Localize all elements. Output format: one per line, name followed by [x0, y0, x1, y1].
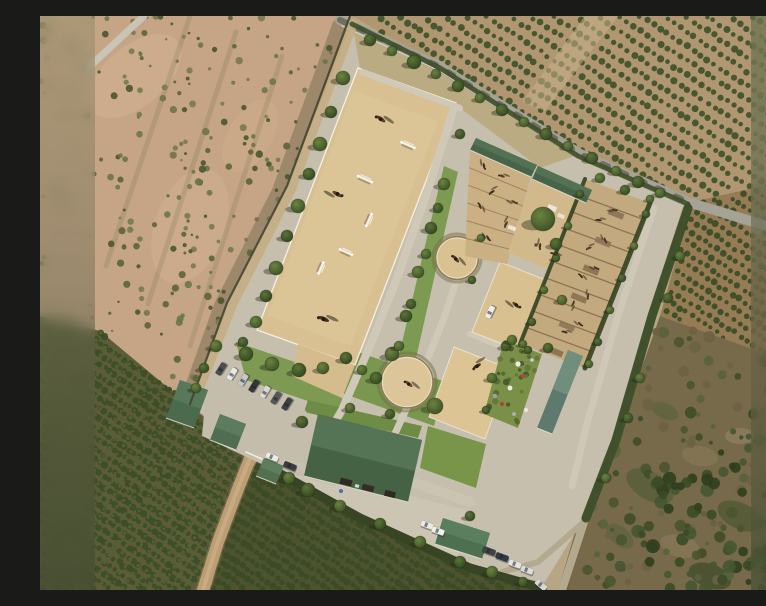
orchard-tree [185, 563, 188, 566]
bush [123, 281, 130, 288]
orchard-tree [254, 550, 259, 555]
orchard-tree [745, 338, 750, 343]
bush [208, 306, 212, 310]
orchard-tree [102, 508, 105, 511]
orchard-tree [250, 559, 255, 564]
bush [266, 118, 270, 122]
orchard-tree [486, 87, 491, 92]
orchard-tree [170, 553, 175, 558]
bush [659, 462, 670, 473]
bush [638, 531, 645, 538]
orchard-tree [499, 37, 504, 42]
bush [67, 88, 74, 95]
bush [104, 16, 109, 21]
bush [73, 144, 78, 149]
orchard-tree [132, 430, 135, 433]
orchard-tree [235, 537, 241, 543]
orchard-tree [611, 40, 616, 45]
bush [748, 409, 759, 420]
bush [688, 435, 695, 442]
bush [626, 563, 633, 570]
orchard-tree [105, 432, 109, 436]
orchard-tree [415, 550, 420, 555]
orchard-tree [70, 519, 73, 522]
orchard-tree [745, 40, 750, 45]
orchard-tree [696, 235, 702, 241]
orchard-tree [111, 406, 114, 409]
orchard-tree [437, 26, 443, 32]
orchard-tree [325, 577, 330, 582]
orchard-tree [95, 395, 98, 398]
orchard-tree [578, 89, 585, 96]
orchard-tree [632, 138, 637, 143]
orchard-tree [255, 571, 261, 577]
orchard-tree [760, 288, 766, 294]
orchard-tree [133, 409, 136, 412]
orchard-tree [76, 565, 79, 568]
orchard-tree [599, 103, 604, 108]
orchard-tree [612, 155, 619, 162]
tree-crown [400, 310, 412, 322]
orchard-tree [87, 387, 91, 391]
orchard-tree [578, 133, 584, 139]
orchard-tree [68, 485, 72, 489]
orchard-tree [748, 279, 753, 284]
orchard-tree [471, 34, 476, 39]
orchard-tree [731, 145, 738, 152]
orchard-tree [241, 509, 247, 515]
orchard-tree [697, 24, 702, 29]
bush [188, 82, 191, 85]
bush [696, 395, 704, 403]
bush [89, 303, 92, 306]
orchard-tree [639, 71, 644, 76]
bush [205, 148, 210, 153]
orchard-tree [95, 448, 97, 450]
orchard-tree [686, 130, 691, 135]
orchard-tree [58, 522, 61, 525]
orchard-tree [624, 134, 631, 141]
orchard-tree [119, 378, 122, 381]
orchard-tree [653, 152, 658, 157]
orchard-tree [619, 30, 623, 34]
bush [201, 160, 206, 165]
orchard-tree [195, 493, 199, 497]
orchard-tree [719, 81, 725, 87]
orchard-tree [191, 448, 194, 451]
orchard-tree [62, 426, 65, 429]
orchard-tree [95, 373, 99, 377]
bush [739, 458, 747, 466]
bush [262, 87, 268, 93]
orchard-tree [130, 538, 133, 541]
orchard-tree [60, 553, 64, 557]
bush [633, 437, 642, 446]
orchard-tree [82, 341, 85, 344]
orchard-tree [55, 345, 58, 348]
orchard-tree [108, 391, 112, 395]
orchard-tree [138, 510, 141, 513]
bush [276, 158, 281, 163]
bush [297, 67, 300, 70]
orchard-tree [511, 75, 516, 80]
bush [664, 504, 674, 514]
orchard-tree [79, 471, 83, 475]
orchard-tree [645, 163, 650, 168]
orchard-tree [738, 64, 743, 69]
orchard-tree [169, 464, 172, 467]
orchard-tree [350, 582, 355, 587]
orchard-tree [626, 105, 631, 110]
orchard-tree [271, 529, 276, 534]
orchard-tree [140, 434, 143, 437]
orchard-tree [175, 578, 178, 581]
bush [170, 22, 173, 25]
orchard-tree [72, 368, 77, 373]
orchard-tree [135, 477, 138, 480]
orchard-tree [434, 563, 439, 568]
orchard-tree [43, 435, 47, 439]
bush [720, 525, 726, 531]
orchard-tree [660, 157, 665, 162]
bush [133, 243, 140, 250]
orchard-tree [76, 369, 79, 372]
orchard-tree [451, 50, 457, 56]
orchard-tree [171, 478, 174, 481]
orchard-tree [720, 225, 725, 230]
orchard-tree [149, 527, 151, 529]
bush [746, 434, 752, 440]
orchard-tree [644, 32, 650, 38]
bush [726, 507, 737, 518]
bush [123, 75, 127, 79]
orchard-tree [47, 383, 52, 388]
bush [184, 213, 190, 219]
orchard-tree [188, 436, 190, 438]
orchard-tree [523, 68, 530, 75]
orchard-tree [748, 291, 754, 297]
orchard-tree [120, 410, 123, 413]
orchard-tree [651, 21, 657, 27]
bush [61, 111, 68, 118]
orchard-tree [48, 415, 53, 420]
bush [678, 525, 683, 530]
orchard-tree [378, 580, 385, 587]
orchard-tree [261, 564, 267, 570]
orchard-tree [605, 92, 612, 99]
tree-crown [250, 316, 262, 328]
orchard-tree [231, 576, 237, 582]
orchard-tree [177, 449, 180, 452]
orchard-tree [171, 587, 174, 590]
orchard-tree [750, 43, 757, 50]
bush [170, 292, 174, 296]
bush [179, 142, 183, 146]
orchard-tree [146, 374, 149, 377]
orchard-tree [101, 475, 103, 477]
bush [144, 310, 150, 316]
bush [182, 35, 186, 39]
circle-item [493, 394, 497, 398]
orchard-tree [492, 34, 496, 38]
orchard-tree [202, 522, 205, 525]
bush [594, 551, 600, 557]
bush [140, 56, 144, 60]
orchard-tree [75, 554, 80, 559]
orchard-tree [686, 172, 692, 178]
orchard-tree [699, 125, 704, 130]
orchard-tree [743, 301, 748, 306]
orchard-tree [539, 34, 544, 39]
orchard-tree [225, 471, 229, 475]
orchard-tree [131, 418, 136, 423]
orchard-tree [216, 453, 222, 459]
orchard-tree [81, 395, 83, 397]
orchard-tree [136, 465, 141, 470]
orchard-tree [224, 563, 231, 570]
orchard-tree [158, 481, 161, 484]
orchard-tree [704, 263, 710, 269]
orchard-tree [66, 472, 69, 475]
orchard-tree [718, 151, 725, 158]
orchard-tree [162, 580, 166, 584]
orchard-tree [705, 71, 711, 77]
orchard-tree [201, 509, 206, 514]
aerial-photo-equestrian-facility [40, 16, 766, 590]
orchard-tree [60, 500, 63, 503]
orchard-tree [652, 51, 657, 56]
orchard-tree [679, 140, 686, 147]
orchard-tree [374, 555, 380, 561]
orchard-tree [592, 97, 597, 102]
orchard-tree [530, 59, 537, 66]
bush [208, 67, 211, 70]
bush [268, 165, 274, 171]
orchard-tree [512, 61, 519, 68]
orchard-tree [73, 390, 76, 393]
orchard-tree [725, 98, 730, 103]
bush [723, 560, 736, 573]
orchard-tree [571, 128, 578, 135]
orchard-tree [697, 53, 703, 59]
orchard-tree [658, 114, 664, 120]
orchard-tree [638, 142, 644, 148]
orchard-tree [146, 461, 150, 465]
tree-crown [618, 274, 626, 282]
orchard-tree [723, 275, 728, 280]
orchard-tree [606, 121, 611, 126]
orchard-tree [61, 360, 67, 366]
orchard-tree [735, 271, 741, 277]
orchard-tree [728, 279, 733, 284]
orchard-tree [424, 47, 429, 52]
orchard-tree [107, 554, 110, 557]
bush [183, 226, 188, 231]
orchard-tree [261, 522, 266, 527]
orchard-tree [150, 419, 154, 423]
bush [117, 259, 124, 266]
orchard-tree [145, 569, 148, 572]
orchard-tree [69, 397, 72, 400]
orchard-tree [164, 398, 168, 402]
orchard-tree [233, 558, 240, 565]
orchard-tree [664, 308, 670, 314]
bush [181, 232, 186, 237]
orchard-tree [695, 305, 701, 311]
orchard-tree [740, 250, 745, 255]
bush [46, 25, 53, 32]
orchard-tree [175, 568, 180, 573]
bush [503, 379, 510, 386]
orchard-tree [739, 136, 744, 141]
bush [683, 530, 689, 536]
orchard-tree [744, 230, 749, 235]
orchard-tree [606, 135, 611, 140]
bush [69, 160, 73, 164]
orchard-tree [81, 579, 86, 584]
orchard-tree [700, 310, 705, 315]
orchard-tree [304, 497, 311, 504]
orchard-tree [51, 547, 55, 551]
tree-crown [606, 306, 614, 314]
bush [609, 497, 619, 507]
orchard-tree [511, 31, 516, 36]
orchard-tree [159, 459, 163, 463]
orchard-tree [126, 383, 129, 386]
orchard-tree [265, 526, 270, 531]
orchard-tree [115, 561, 118, 564]
orchard-tree [343, 578, 350, 585]
orchard-tree [240, 530, 245, 535]
orchard-tree [404, 554, 409, 559]
orchard-tree [188, 521, 192, 525]
orchard-tree [108, 426, 112, 430]
bush [173, 145, 178, 150]
orchard-tree [633, 167, 638, 172]
orchard-tree [455, 577, 460, 582]
orchard-tree [209, 459, 212, 462]
orchard-tree [758, 177, 765, 184]
bush [247, 27, 250, 30]
orchard-tree [270, 505, 277, 512]
orchard-tree [148, 406, 150, 408]
orchard-tree [53, 473, 56, 476]
orchard-tree [716, 285, 721, 290]
orchard-tree [759, 149, 764, 154]
orchard-tree [74, 586, 77, 589]
orchard-tree [305, 531, 310, 536]
orchard-tree [121, 390, 125, 394]
orchard-tree [131, 376, 133, 378]
orchard-tree [250, 570, 255, 575]
orchard-tree [211, 473, 214, 476]
orchard-tree [552, 29, 558, 35]
orchard-tree [144, 535, 146, 537]
orchard-tree [111, 514, 114, 517]
bush [605, 576, 616, 587]
orchard-tree [264, 579, 270, 585]
orchard-tree [178, 559, 181, 562]
orchard-tree [750, 31, 756, 37]
orchard-tree [156, 380, 161, 385]
bush [269, 78, 276, 85]
tree-crown [199, 363, 209, 373]
orchard-tree [155, 501, 158, 504]
bush [124, 80, 129, 85]
circle-item [515, 361, 520, 366]
bush [497, 372, 501, 376]
orchard-tree [77, 457, 80, 460]
orchard-tree [325, 510, 332, 517]
orchard-tree [72, 552, 76, 556]
orchard-tree [136, 496, 143, 503]
orchard-tree [97, 557, 102, 562]
orchard-tree [531, 44, 536, 49]
orchard-tree [50, 407, 53, 410]
orchard-tree [611, 54, 616, 59]
orchard-tree [703, 250, 709, 256]
bush [680, 426, 688, 434]
orchard-tree [346, 558, 351, 563]
orchard-tree [689, 230, 696, 237]
bush [160, 333, 163, 336]
orchard-tree [299, 504, 306, 511]
orchard-tree [50, 494, 53, 497]
bush [659, 491, 667, 499]
orchard-tree [54, 399, 57, 402]
bush [183, 243, 187, 247]
orchard-tree [492, 19, 497, 24]
tree-crown [540, 128, 552, 140]
orchard-tree [544, 54, 549, 59]
orchard-tree [217, 465, 220, 468]
orchard-tree [692, 281, 698, 287]
bush [115, 185, 120, 190]
orchard-tree [605, 150, 610, 155]
orchard-tree [51, 583, 54, 586]
orchard-tree [660, 172, 664, 176]
bush [183, 140, 188, 145]
orchard-tree [665, 59, 670, 64]
bush [265, 157, 269, 161]
orchard-tree [624, 61, 631, 68]
orchard-tree [43, 577, 46, 580]
orchard-tree [740, 151, 745, 156]
orchard-tree [130, 450, 133, 453]
orchard-tree [281, 514, 286, 519]
orchard-tree [630, 109, 637, 116]
orchard-tree [289, 563, 296, 570]
orchard-tree [255, 519, 260, 524]
orchard-tree [140, 510, 147, 517]
orchard-tree [752, 160, 759, 167]
orchard-tree [134, 442, 137, 445]
bush [183, 252, 186, 255]
orchard-tree [386, 541, 391, 546]
orchard-tree [65, 580, 68, 583]
orchard-tree [83, 376, 86, 379]
orchard-tree [92, 404, 97, 409]
orchard-tree [465, 59, 471, 65]
orchard-tree [679, 127, 685, 133]
orchard-tree [209, 460, 217, 468]
orchard-tree [625, 120, 632, 127]
orchard-tree [519, 93, 524, 98]
orchard-tree [754, 284, 760, 290]
orchard-tree [99, 407, 102, 410]
orchard-tree [705, 300, 711, 306]
orchard-tree [259, 542, 266, 549]
